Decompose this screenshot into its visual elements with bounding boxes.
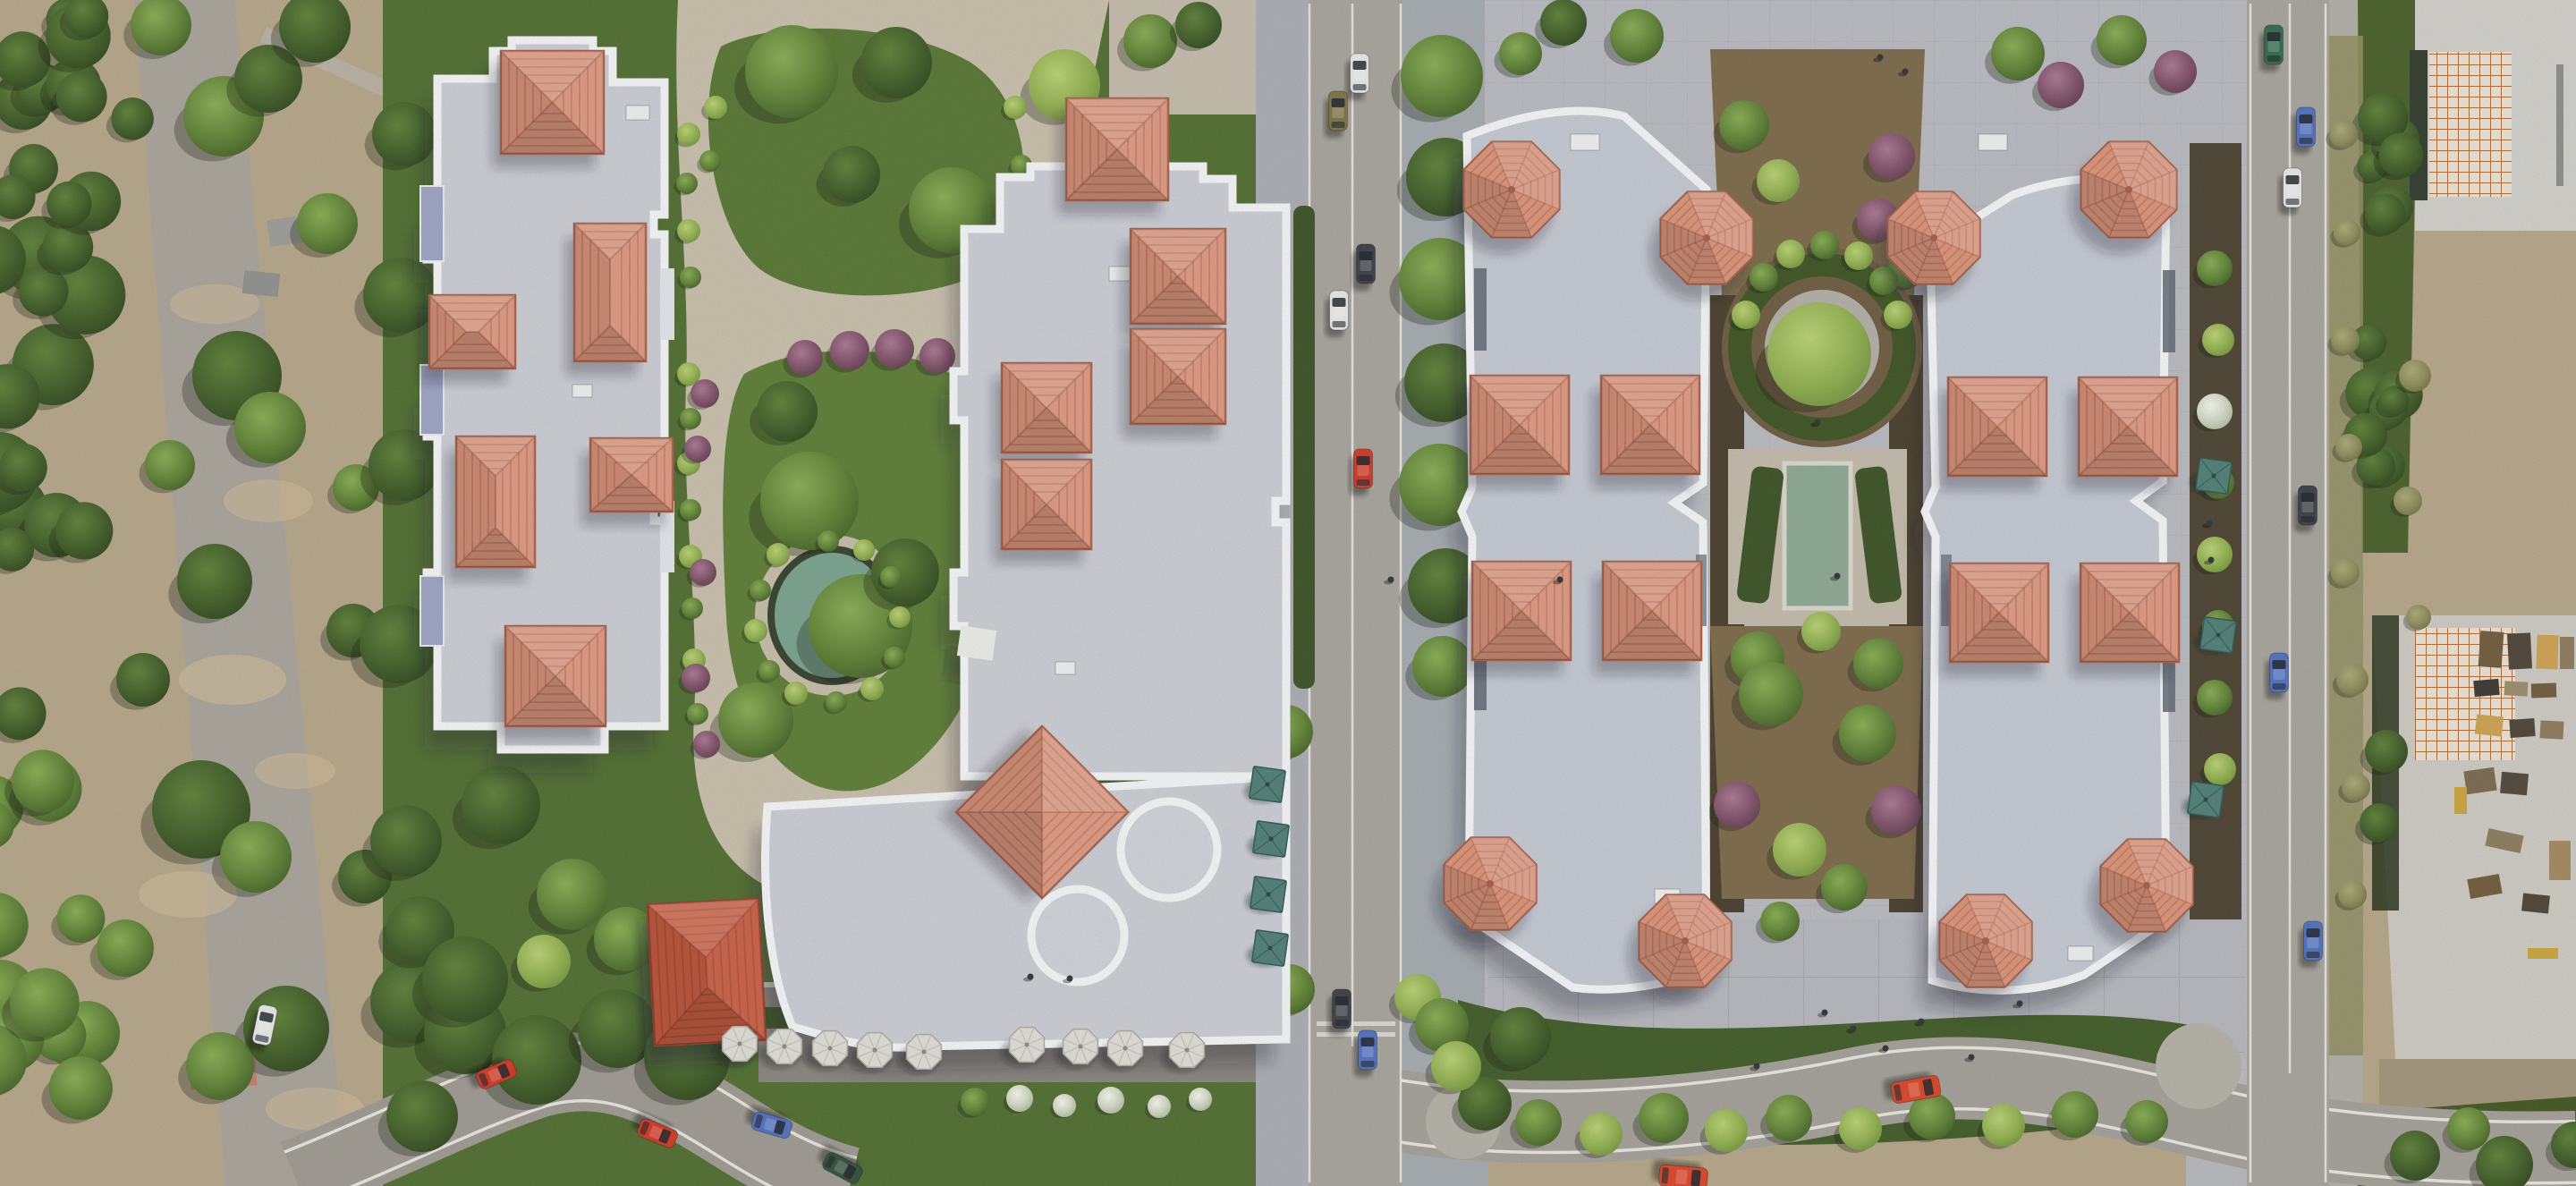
aerial-masterplan-render bbox=[0, 0, 2576, 1186]
site-plan-canvas bbox=[0, 0, 2576, 1186]
photo-grain-overlay bbox=[0, 0, 2576, 1186]
